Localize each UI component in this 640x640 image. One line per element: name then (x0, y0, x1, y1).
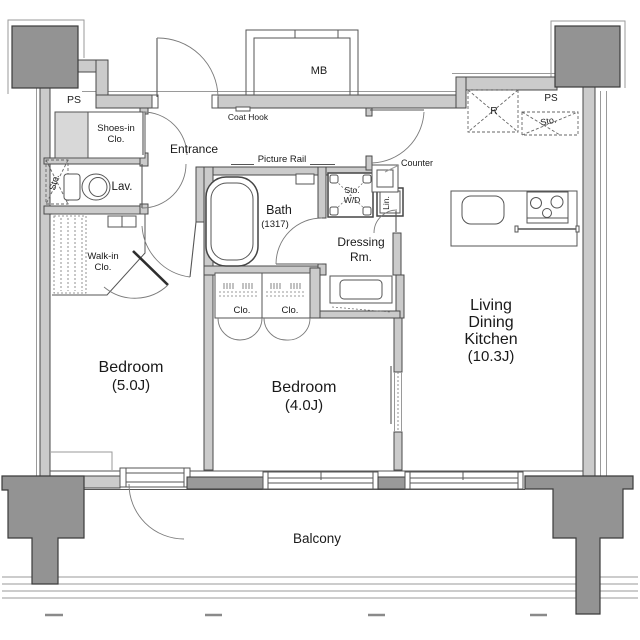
label-coat-hook: Coat Hook (228, 112, 269, 122)
entry-door-swing (157, 38, 218, 97)
label-bedroom4-1: Bedroom (272, 379, 337, 396)
label-bedroom5-2: (5.0J) (112, 377, 150, 394)
label-walk-in-2: Clo. (95, 262, 112, 273)
label-bath-1: Bath (266, 203, 292, 217)
bedroom5-step-line (51, 452, 112, 470)
bedroom5-door-swing (142, 226, 190, 277)
meter-box (246, 30, 358, 95)
toilet-icon (64, 174, 110, 200)
label-storage-kitchen: Sto. (540, 115, 558, 128)
label-mb: MB (311, 65, 328, 77)
wall-ldk-jamb-bottom (366, 156, 372, 170)
column-bottom-right (525, 476, 633, 614)
bath-counter-icon (296, 174, 314, 184)
label-balcony: Balcony (293, 531, 341, 546)
meter-box-inner (254, 38, 350, 95)
wall-closet-divider (310, 268, 320, 318)
balcony-openings (120, 468, 523, 539)
entry-door-jamb-right (212, 95, 218, 108)
sliding-door-bedroom4 (391, 366, 402, 432)
label-ldk-1: Living (470, 297, 512, 314)
balcony-railing (2, 577, 638, 615)
label-ldk-4: (10.3J) (468, 348, 515, 365)
label-closet-left: Clo. (234, 305, 251, 316)
kitchen-sink-icon (462, 196, 504, 224)
wall-walkin-top (44, 206, 145, 214)
wall-bath-dressing-a (318, 167, 326, 218)
wall-top-jog (456, 77, 466, 108)
label-bath-2: (1317) (261, 219, 288, 230)
bedroom5-door-leaf (190, 222, 196, 277)
kitchen-area (372, 90, 579, 246)
label-storage-wd-1: Sto. (344, 185, 359, 195)
wall-top-b (215, 95, 466, 108)
wall-dressing-east-a (393, 233, 401, 275)
column-top-right (555, 26, 620, 87)
wall-bedroom4-east-a (394, 318, 402, 372)
wall-hall-jamb-3 (140, 204, 148, 214)
counter-hall (372, 165, 399, 192)
label-shoes-closet-2: Clo. (108, 134, 125, 145)
wall-hall-east (196, 167, 204, 222)
label-bedroom5-1: Bedroom (99, 359, 164, 376)
spandrel-wall-1 (187, 477, 263, 489)
ldk-door-swing (372, 112, 424, 163)
wall-top-c (466, 77, 557, 90)
label-storage-wd-2: W/D (344, 195, 361, 205)
closet-bifold-doors (218, 318, 310, 340)
column-top-left (12, 26, 78, 88)
wall-bedroom4-east-b (394, 432, 402, 470)
label-linen: Lin. (381, 196, 391, 210)
wall-right (583, 87, 595, 477)
label-counter: Counter (401, 158, 433, 168)
bathtub-icon (206, 177, 258, 266)
label-lavatory: Lav. (112, 181, 133, 193)
meter-box-outer (246, 30, 358, 95)
balcony-door (120, 468, 190, 539)
floor-plan: PS MB Coat Hook Shoes-in Clo. Entrance P… (0, 0, 640, 640)
coat-hook-icon (236, 107, 250, 111)
stove-icon (527, 192, 568, 223)
label-ps-left: PS (67, 94, 81, 106)
label-dressing-2: Rm. (350, 250, 372, 264)
sliding-window-bedroom4 (263, 472, 378, 489)
vanity-icon (330, 276, 392, 312)
kitchen-counter (451, 191, 579, 246)
balcony-door-swing (129, 484, 184, 539)
label-picture-rail: Picture Rail (258, 154, 307, 165)
wall-top-a (96, 95, 158, 108)
walk-in-shelf-hatch (54, 216, 86, 293)
wall-bottom-left (84, 476, 120, 488)
floor-plan-drawing: PS MB Coat Hook Shoes-in Clo. Entrance P… (0, 0, 640, 640)
label-dressing-1: Dressing (337, 235, 384, 249)
lavatory-door-swing (142, 164, 186, 208)
walk-in-door-leaf (133, 251, 168, 285)
label-entrance: Entrance (170, 142, 218, 156)
hall-shelf-cell (108, 216, 122, 227)
label-bedroom4-2: (4.0J) (285, 397, 323, 414)
label-closet-right: Clo. (282, 305, 299, 316)
label-ldk-3: Kitchen (464, 331, 517, 348)
label-shoes-closet-1: Shoes-in (97, 123, 135, 134)
corridor-ldk-door (370, 110, 424, 163)
balcony-door-leaf (126, 473, 184, 482)
hall-shelf-cell (122, 216, 136, 227)
column-bottom-left (2, 476, 84, 584)
spandrel-wall-2 (378, 477, 405, 489)
wall-left (40, 88, 50, 477)
label-ldk-2: Dining (468, 314, 513, 331)
label-refrigerator: R (490, 106, 497, 117)
wall-lav-top (44, 158, 148, 164)
ps-shaft-box (55, 112, 88, 158)
wall-ldk-jamb-top (366, 108, 372, 116)
label-ps-right: PS (544, 93, 558, 104)
label-walk-in-1: Walk-in (87, 251, 118, 262)
sliding-window-ldk (405, 472, 523, 489)
